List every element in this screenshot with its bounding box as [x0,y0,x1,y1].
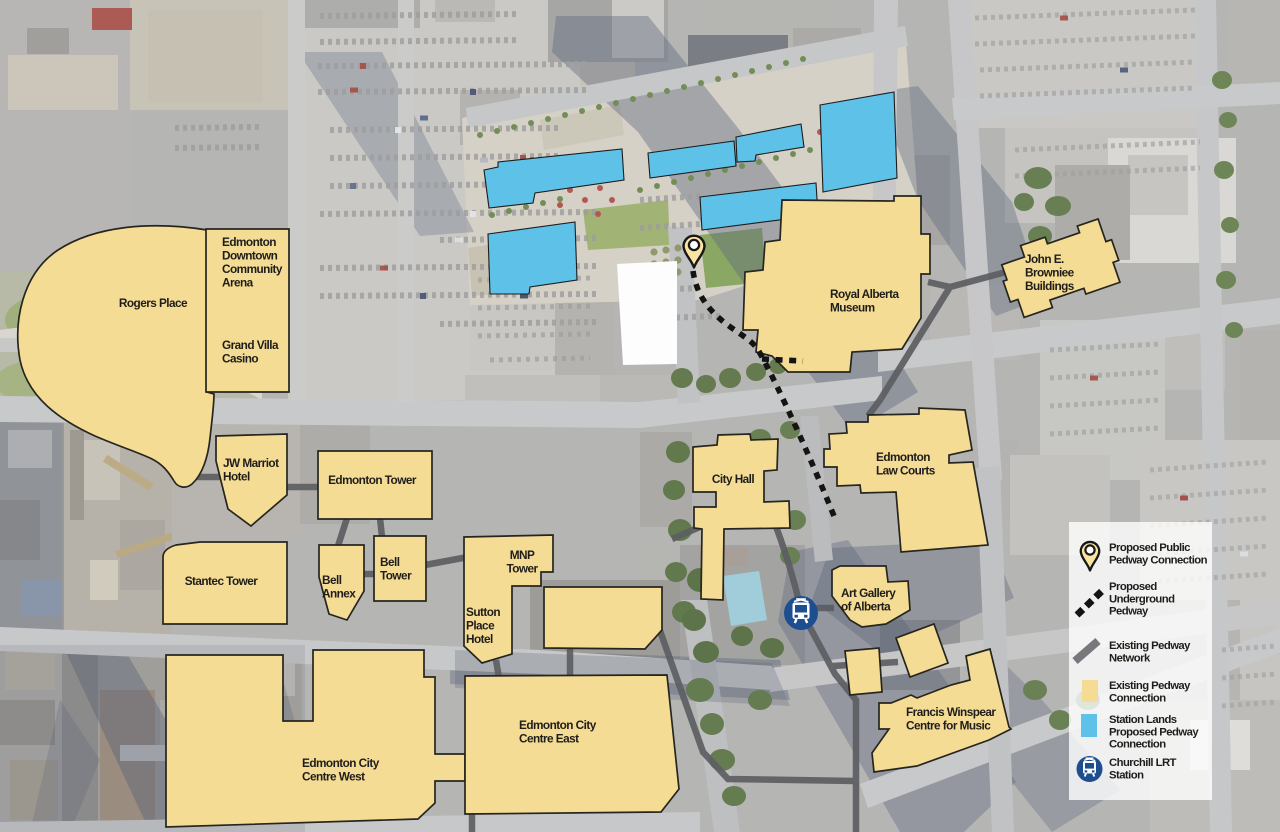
svg-text:Art Galleryof Alberta: Art Galleryof Alberta [841,586,896,614]
svg-text:EdmontonLaw Courts: EdmontonLaw Courts [876,450,936,478]
svg-text:Stantec Tower: Stantec Tower [185,574,259,588]
svg-text:Rogers Place: Rogers Place [119,296,188,310]
svg-text:Edmonton Tower: Edmonton Tower [328,473,417,487]
svg-text:Francis WinspearCentre for Mus: Francis WinspearCentre for Music [906,705,996,733]
svg-text:City Hall: City Hall [712,472,755,486]
svg-text:MNPTower: MNPTower [506,548,538,576]
